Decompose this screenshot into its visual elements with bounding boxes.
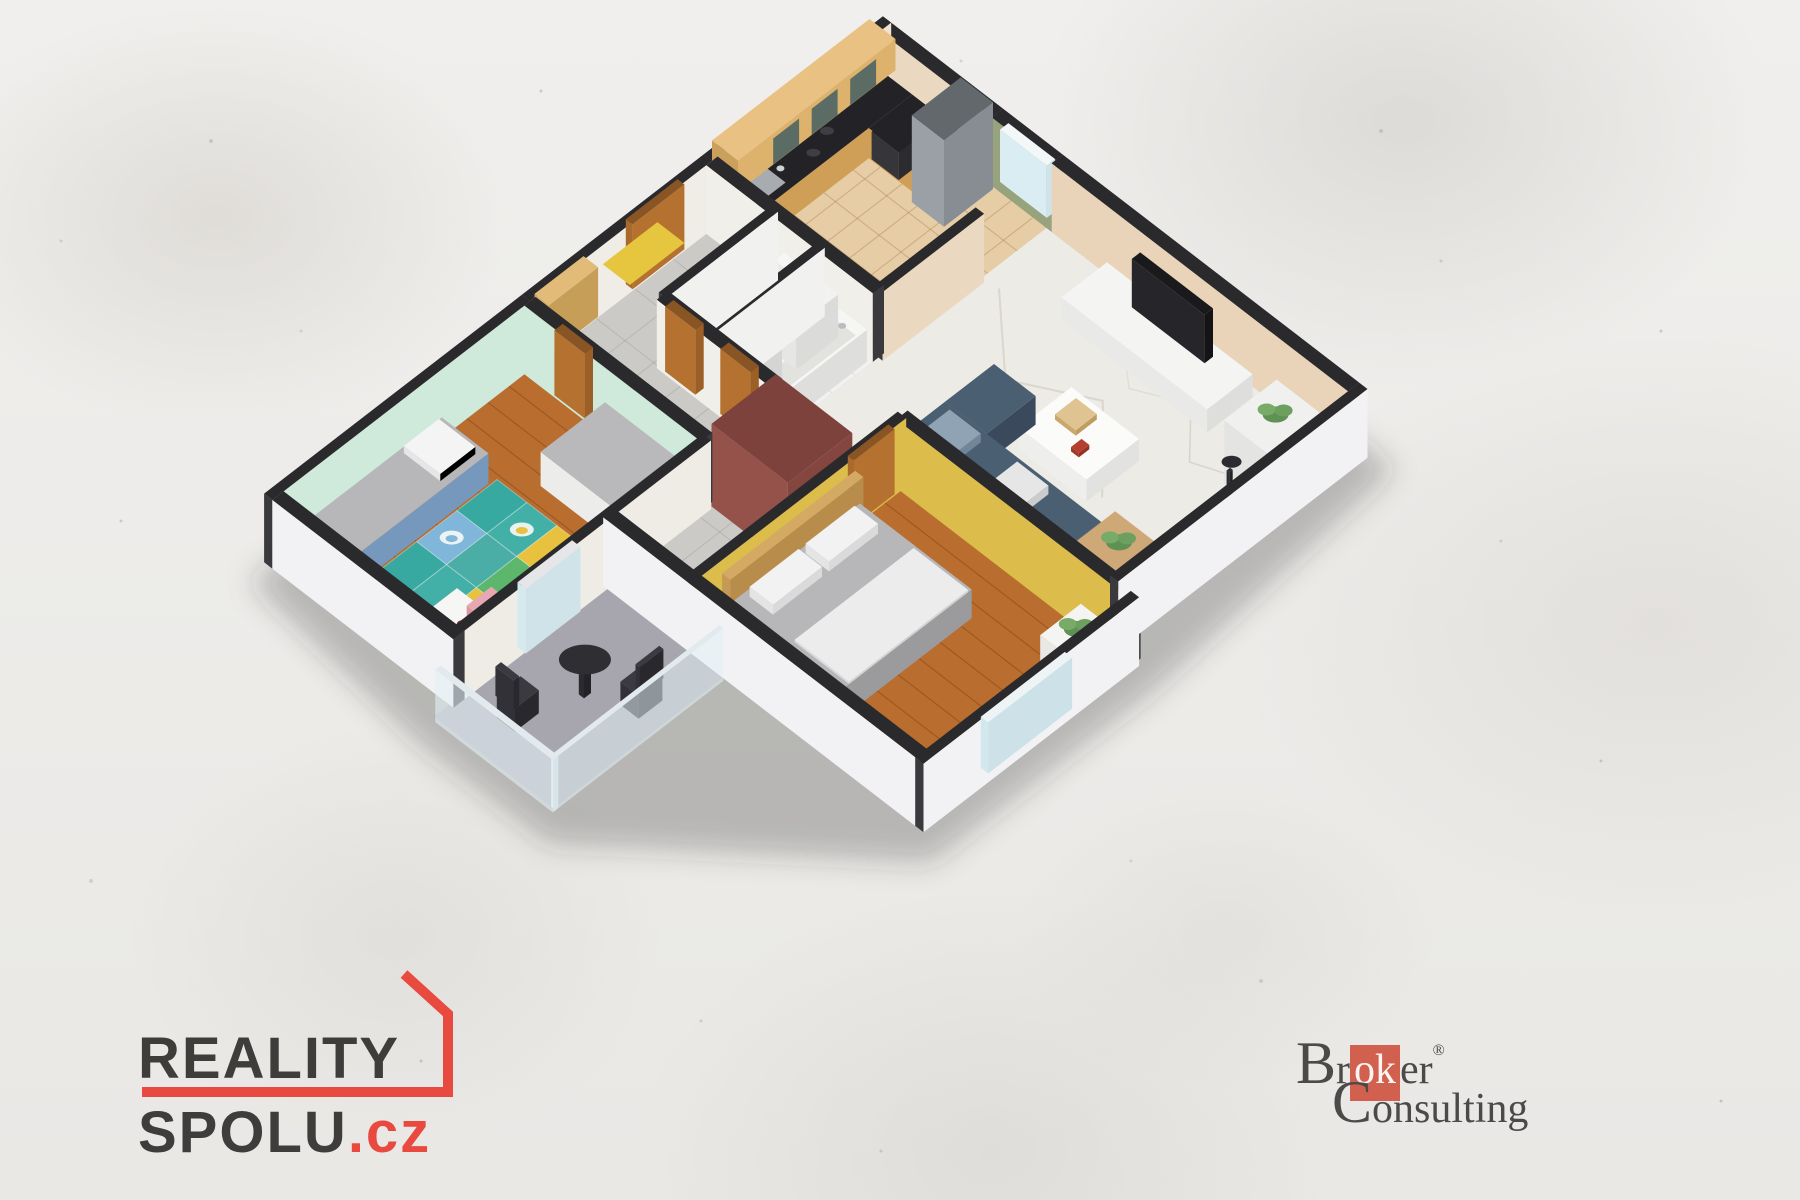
wall-kitchen-hall-se (873, 285, 884, 362)
balcony-chair-2-back-se (514, 676, 520, 709)
reality-spolu-line2: SPOLU.cz (138, 1104, 498, 1162)
poster-background: REALITY SPOLU.cz Broker® Consulting (0, 0, 1800, 1200)
wall-outer-nw-kids-sw (264, 494, 272, 569)
balcony-door-sw (518, 582, 526, 653)
kitchen-faucet (776, 165, 784, 171)
reality-spolu-word: SPOLU (138, 1100, 348, 1165)
plant-leaves (1118, 532, 1136, 544)
reality-spolu-line1: REALITY (138, 1030, 498, 1088)
bath-faucet (838, 323, 846, 329)
consulting-initial: C (1332, 1069, 1372, 1135)
plant-leaves (1275, 405, 1293, 417)
consulting-line: Consulting (1332, 1079, 1528, 1132)
reality-spolu-logo: REALITY SPOLU.cz (138, 1030, 498, 1162)
balcony-table-top (559, 645, 611, 675)
balcony-railing-sw-se (553, 756, 559, 813)
mat-animal-face (446, 535, 458, 542)
cooktop-burner-1 (820, 127, 834, 135)
tv-se (1205, 308, 1213, 363)
broker-initial: B (1296, 1030, 1336, 1096)
wall-outer-se-bedroom-sw (915, 757, 923, 832)
reality-spolu-tld: .cz (348, 1100, 431, 1165)
registered-mark: ® (1433, 1042, 1445, 1059)
mat-animal-face (516, 527, 528, 534)
wc-door-se (695, 323, 703, 394)
floor-lamp-shade (1222, 456, 1242, 468)
plant-leaves (1258, 404, 1276, 416)
broker-consulting-logo: Broker® Consulting (1296, 1028, 1528, 1132)
bedroom-window-sw (981, 717, 988, 774)
plant-leaves (1101, 531, 1119, 543)
consulting-text: onsulting (1372, 1086, 1528, 1132)
plant-leaves (1059, 618, 1077, 630)
cooktop-burner-2 (806, 149, 820, 157)
kids-door-se (585, 347, 593, 418)
